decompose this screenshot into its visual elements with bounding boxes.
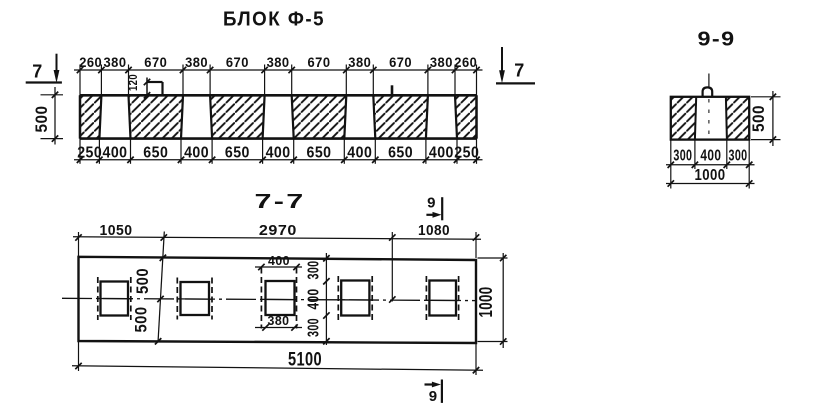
svg-text:400: 400 [268, 253, 290, 268]
svg-text:300: 300 [306, 261, 323, 280]
svg-text:400: 400 [306, 289, 323, 310]
svg-text:1050: 1050 [100, 222, 133, 239]
svg-text:380: 380 [348, 55, 371, 70]
svg-text:260: 260 [79, 55, 102, 70]
svg-text:1000: 1000 [476, 287, 496, 318]
svg-text:7: 7 [514, 61, 525, 81]
svg-text:650: 650 [225, 145, 250, 162]
svg-text:380: 380 [185, 55, 208, 70]
svg-text:БЛОК Ф-5: БЛОК Ф-5 [223, 9, 325, 31]
svg-text:300: 300 [306, 318, 323, 337]
svg-text:1000: 1000 [695, 167, 726, 184]
svg-text:500: 500 [749, 105, 768, 132]
svg-text:670: 670 [389, 55, 412, 70]
svg-text:670: 670 [226, 55, 249, 70]
svg-text:1080: 1080 [418, 222, 450, 239]
svg-text:7: 7 [32, 62, 43, 82]
svg-text:650: 650 [388, 145, 413, 162]
svg-text:400: 400 [184, 145, 209, 162]
svg-text:2970: 2970 [259, 222, 297, 239]
svg-text:300: 300 [729, 148, 748, 165]
svg-text:400: 400 [347, 145, 372, 162]
svg-text:400: 400 [700, 148, 721, 165]
svg-text:400: 400 [429, 145, 454, 162]
svg-text:500: 500 [132, 307, 151, 333]
svg-text:380: 380 [104, 55, 127, 70]
svg-text:250: 250 [77, 145, 102, 162]
svg-text:260: 260 [454, 55, 477, 70]
svg-text:9: 9 [427, 195, 436, 212]
svg-text:7-7: 7-7 [255, 191, 306, 213]
svg-text:650: 650 [307, 145, 332, 162]
svg-text:250: 250 [454, 145, 479, 162]
svg-text:650: 650 [143, 145, 168, 162]
svg-text:380: 380 [430, 55, 453, 70]
svg-text:670: 670 [308, 55, 331, 70]
svg-text:9-9: 9-9 [698, 29, 736, 51]
svg-text:500: 500 [133, 268, 152, 294]
svg-text:400: 400 [266, 145, 291, 162]
svg-text:500: 500 [32, 106, 51, 133]
svg-text:380: 380 [267, 55, 290, 70]
svg-text:380: 380 [268, 313, 290, 328]
svg-text:9: 9 [429, 388, 438, 405]
svg-text:400: 400 [103, 145, 128, 162]
svg-text:670: 670 [144, 55, 167, 70]
svg-text:300: 300 [673, 148, 692, 165]
svg-text:5100: 5100 [288, 349, 322, 370]
